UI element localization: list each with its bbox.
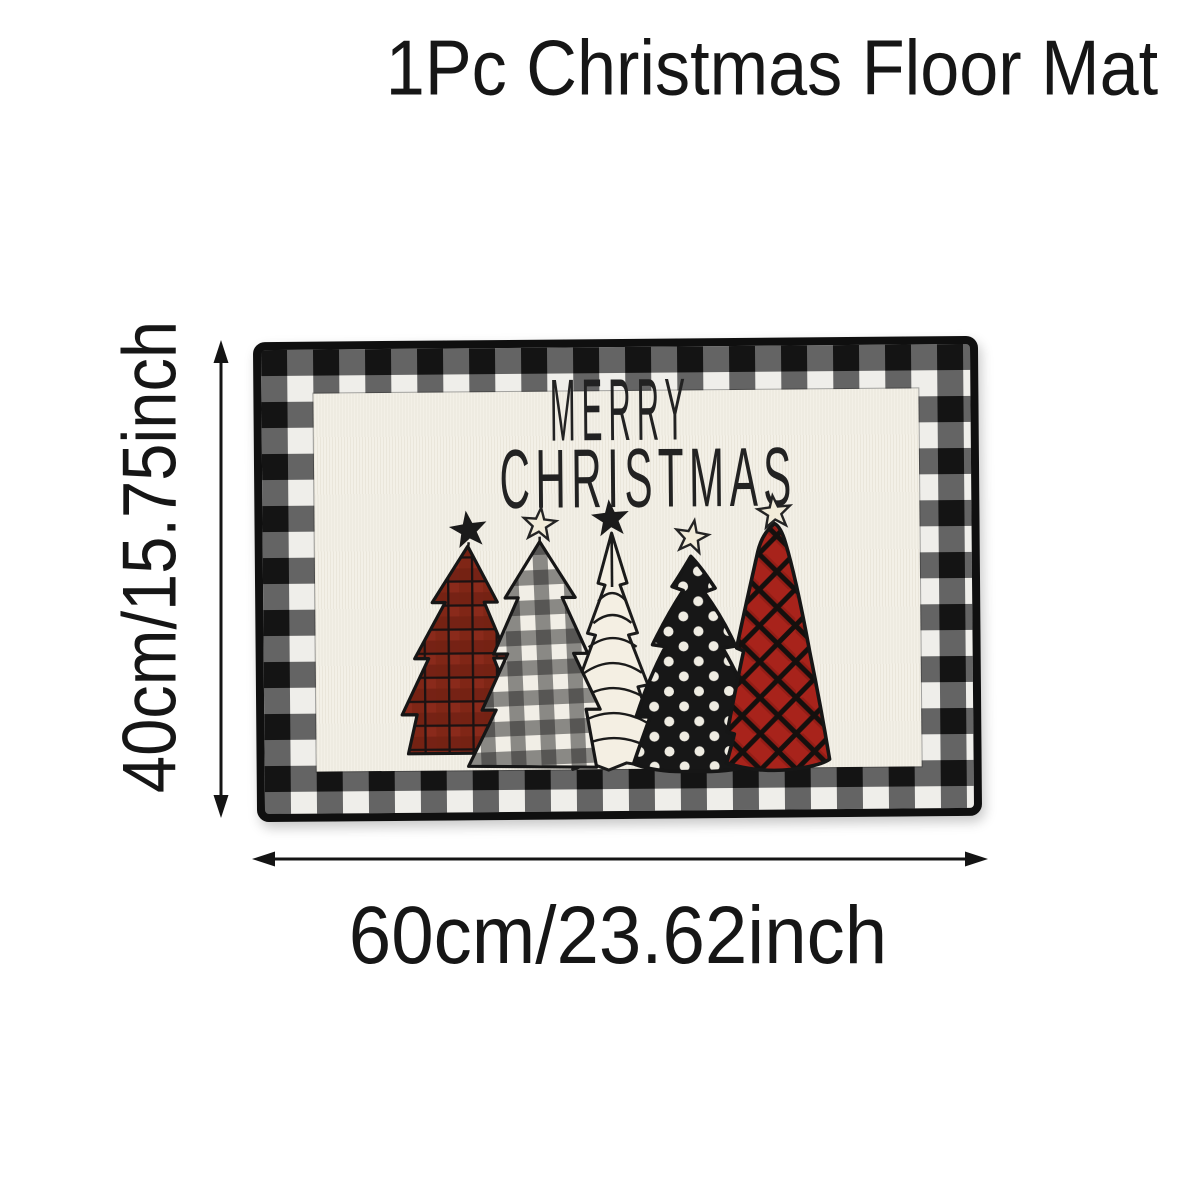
product-image: 1Pc Christmas Floor Mat (0, 0, 1200, 1200)
mat-artwork: MERRY CHRISTMAS (253, 336, 966, 806)
width-dimension-arrow (248, 844, 992, 874)
greeting-line-2: CHRISTMAS (499, 431, 797, 527)
height-dimension-label: 40cm/15.75inch (107, 321, 194, 793)
tree-red-lattice (724, 494, 829, 771)
width-dimension-label: 60cm/23.62inch (349, 889, 887, 983)
product-title: 1Pc Christmas Floor Mat (386, 23, 1158, 114)
star-icon (450, 511, 487, 546)
floor-mat: MERRY CHRISTMAS (253, 336, 982, 822)
height-dimension-arrow (204, 336, 238, 822)
